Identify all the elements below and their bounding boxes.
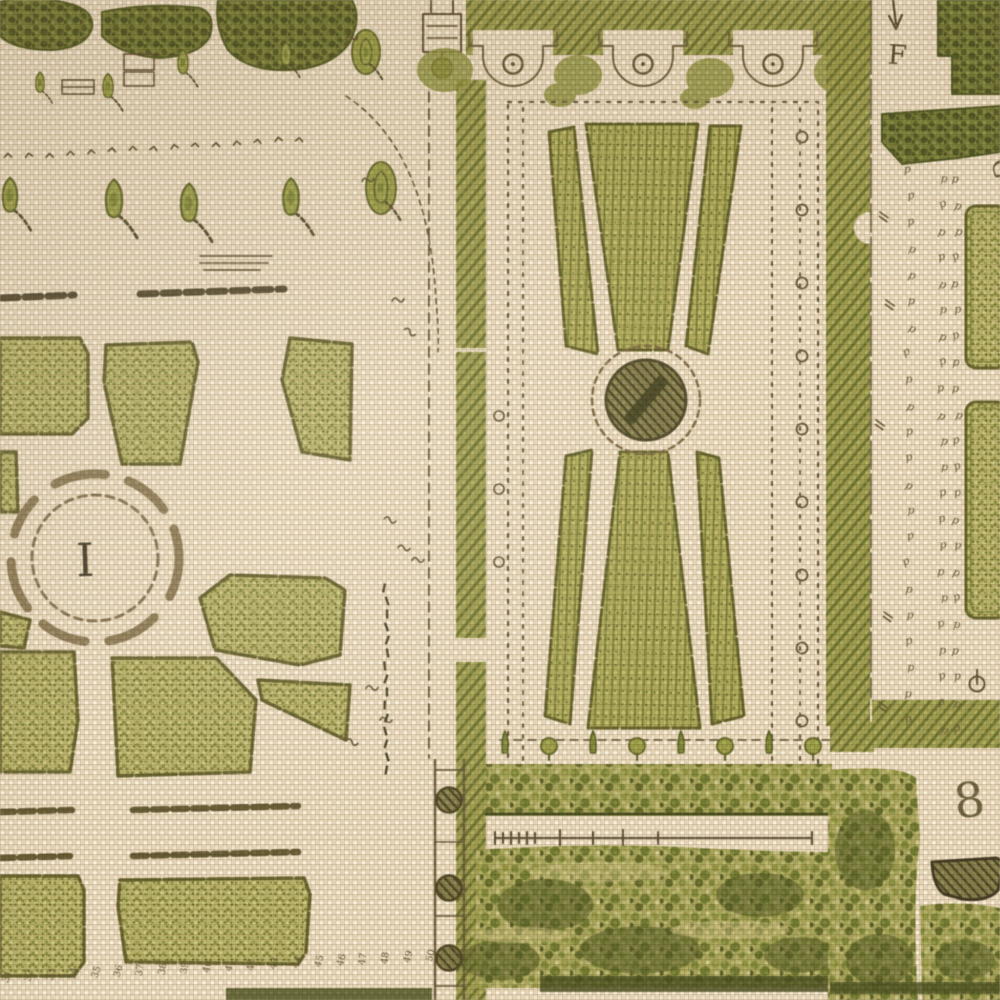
tree-symbol-mark: p bbox=[904, 450, 914, 464]
bosquet-dark-strip bbox=[540, 976, 830, 992]
tree-symbol-mark: p bbox=[951, 644, 959, 658]
tree-symbol-mark: p bbox=[952, 382, 960, 395]
chevron-shrub-mark bbox=[88, 150, 95, 154]
tree-shadow-mark bbox=[194, 220, 214, 244]
tree-crown bbox=[717, 738, 733, 754]
tree-symbol-mark: p bbox=[939, 644, 946, 657]
plot-figure-label: 35 bbox=[90, 965, 104, 980]
shrub-squiggle-mark bbox=[412, 557, 424, 563]
curved-path bbox=[346, 96, 438, 352]
walk-circle-mark bbox=[797, 205, 808, 216]
wall-medallion bbox=[437, 876, 462, 901]
tree-symbol-mark: p bbox=[903, 162, 911, 176]
tree-shadow-mark bbox=[186, 73, 198, 88]
tree-icon bbox=[181, 184, 213, 244]
plot-figure-label: 33 bbox=[45, 967, 58, 981]
tree-symbol-mark: p bbox=[954, 538, 962, 551]
tree-symbol-mark: p bbox=[908, 294, 916, 307]
shrub-squiggle-mark bbox=[398, 545, 410, 551]
slash-mark bbox=[884, 300, 895, 310]
tree-shadow-mark bbox=[295, 213, 314, 236]
tree-symbol-mark: p bbox=[951, 565, 961, 579]
tree-symbol-mark: p bbox=[907, 268, 917, 282]
slash-lines bbox=[884, 300, 895, 310]
plot-figure-label: 42 bbox=[245, 958, 257, 971]
tree-clump bbox=[882, 106, 1000, 164]
bastion-outline bbox=[469, 32, 557, 86]
vertical-inscription-mark bbox=[383, 700, 386, 709]
tree-crown bbox=[629, 738, 645, 754]
plot-figure-label: 36 bbox=[112, 964, 126, 978]
vertical-inscription-mark bbox=[384, 765, 388, 774]
tree-symbol-mark: p bbox=[938, 485, 947, 499]
tree-symbol-mark: p bbox=[951, 172, 959, 186]
chevron-shrub-mark bbox=[108, 148, 115, 152]
tree-symbol-mark: p bbox=[937, 196, 949, 211]
tree-symbol-mark: p bbox=[941, 460, 949, 473]
tree-symbol-mark: p bbox=[905, 529, 915, 543]
tree-crown bbox=[805, 738, 821, 754]
walk-circle-mark bbox=[494, 557, 504, 567]
tree-symbol-mark: p bbox=[904, 687, 912, 700]
round-tree-icon bbox=[717, 738, 733, 760]
tree-symbol-mark: p bbox=[905, 399, 916, 414]
chevron-shrub-mark bbox=[46, 153, 53, 157]
vertical-inscription-mark bbox=[385, 752, 390, 761]
basin-numeral: I bbox=[75, 533, 95, 588]
top-left-grove bbox=[0, 0, 357, 298]
basin-inner-ring bbox=[32, 495, 158, 621]
slash-lines bbox=[878, 212, 889, 222]
vertical-inscription-mark bbox=[383, 674, 388, 683]
chevron-shrub-mark bbox=[4, 153, 11, 157]
left-parterre: I bbox=[0, 338, 352, 776]
chevron-shrub-mark bbox=[67, 151, 74, 155]
shrub-squiggle-mark bbox=[404, 327, 417, 337]
round-tree-icon bbox=[629, 738, 645, 760]
vertical-inscription-mark bbox=[385, 596, 390, 605]
tree-symbol-mark: p bbox=[936, 409, 948, 424]
walk-circle-mark bbox=[797, 716, 808, 727]
tree-symbol-mark: p bbox=[937, 354, 948, 369]
central-avenue bbox=[346, 0, 486, 1000]
tree-crown bbox=[590, 731, 596, 753]
plot-figure-label: 45 bbox=[313, 954, 327, 969]
chevron-shrub-mark bbox=[212, 143, 219, 147]
tree-symbol-mark: p bbox=[936, 381, 944, 395]
walk-circle-mark bbox=[797, 497, 808, 508]
tree-symbol-mark: p bbox=[952, 355, 960, 368]
plot-figure-label: 40 bbox=[201, 959, 215, 973]
tree-symbol-mark: p bbox=[905, 372, 912, 385]
vertical-inscription-mark bbox=[386, 687, 389, 696]
tree-symbol-mark: p bbox=[937, 565, 945, 578]
tree-crown bbox=[766, 731, 772, 753]
tree-symbol-mark: p bbox=[953, 617, 961, 631]
walk-circle-mark bbox=[797, 278, 808, 289]
wall-medallion bbox=[437, 788, 462, 813]
bastion-dot bbox=[511, 62, 515, 66]
plot-figure-label: 48 bbox=[379, 951, 392, 964]
edge-label-g: G bbox=[986, 157, 1000, 181]
tree-symbol-mark: p bbox=[903, 478, 915, 493]
plot-figure-label: 43 bbox=[268, 956, 281, 970]
tree-symbol-mark: p bbox=[954, 303, 962, 316]
wall-medallion bbox=[437, 946, 462, 971]
cypress-tree-icon bbox=[678, 731, 684, 753]
tree-clump bbox=[938, 0, 1000, 94]
tree-symbol-mark: p bbox=[907, 503, 914, 516]
tree-shadow-mark bbox=[119, 216, 139, 240]
tree-shadow-mark bbox=[14, 210, 32, 232]
tree-icon bbox=[178, 50, 198, 88]
walk-circle-mark bbox=[797, 132, 808, 143]
shrub-squiggle-mark bbox=[392, 296, 405, 303]
tree-symbol-mark: p bbox=[906, 214, 915, 228]
tree-symbol-mark: p bbox=[953, 486, 962, 500]
plot-figure-label: 39 bbox=[179, 961, 192, 975]
tree-icon bbox=[3, 178, 32, 232]
tree-symbol-mark: p bbox=[939, 538, 948, 552]
chevron-shrub-mark bbox=[254, 139, 261, 143]
tree-symbol-mark: p bbox=[904, 634, 913, 648]
tree-symbol-mark: p bbox=[907, 661, 914, 674]
plot-figure-label: 32 bbox=[22, 968, 35, 982]
tree-symbol-mark: p bbox=[936, 616, 946, 630]
tree-clump bbox=[102, 6, 212, 58]
plot-figure-label: 37 bbox=[134, 963, 146, 976]
walk-circle-mark bbox=[494, 484, 504, 494]
plot-figure-label: 47 bbox=[357, 952, 369, 965]
tree-symbol-mark: p bbox=[940, 303, 947, 316]
tree-symbol-mark: p bbox=[952, 459, 963, 474]
slash-mark bbox=[878, 212, 889, 222]
walk-circle-mark bbox=[797, 424, 808, 435]
bosquet-dark-strip bbox=[830, 982, 1000, 994]
bastion-outline bbox=[599, 32, 687, 86]
chevron-shrub-mark bbox=[129, 146, 136, 150]
vertical-inscription-mark bbox=[382, 583, 386, 592]
basin-outer-ring bbox=[11, 474, 179, 642]
plot-numeral-8: 8 bbox=[951, 771, 988, 830]
chevron-shrub-mark bbox=[275, 137, 282, 141]
tree-symbol-mark: p bbox=[951, 513, 961, 527]
vertical-inscription-mark bbox=[385, 635, 390, 644]
tree-symbol-mark: p bbox=[940, 172, 947, 185]
tree-symbol-mark: p bbox=[937, 225, 947, 239]
chevron-shrub-mark bbox=[171, 144, 179, 149]
tree-symbol-mark: p bbox=[905, 424, 913, 438]
lower-left-parterre bbox=[0, 806, 432, 1000]
vertical-inscription-mark bbox=[383, 726, 388, 735]
tree-symbol-mark: p bbox=[953, 199, 963, 213]
chevron-shrub-mark bbox=[25, 153, 33, 158]
tree-icon bbox=[36, 72, 53, 104]
tree-symbol-mark: p bbox=[951, 433, 960, 447]
shrub-squiggle-mark bbox=[384, 516, 397, 523]
shrub-squiggle-mark bbox=[366, 685, 378, 691]
plot-figure-label: 38 bbox=[156, 962, 169, 976]
tree-symbol-mark: p bbox=[941, 591, 948, 604]
tree-shadow-mark bbox=[111, 97, 123, 112]
round-tree-icon bbox=[541, 738, 557, 760]
shrub-squiggle-mark bbox=[346, 738, 359, 746]
tree-symbol-mark: p bbox=[951, 328, 961, 342]
tree-icon bbox=[106, 180, 138, 240]
cypress-tree-icon bbox=[502, 731, 508, 753]
fountain-symbol bbox=[970, 670, 985, 692]
slash-lines bbox=[874, 420, 885, 430]
tree-symbol-mark: p bbox=[951, 590, 961, 604]
tree-symbol-mark: p bbox=[906, 321, 918, 336]
cypress-tree-icon bbox=[766, 731, 772, 753]
tree-crown bbox=[678, 731, 684, 753]
plot-figure-label: 46 bbox=[335, 953, 349, 968]
tree-crown bbox=[502, 731, 508, 753]
bench-structure bbox=[62, 54, 272, 270]
bottom-dark-hedge-strip bbox=[226, 988, 432, 1000]
vertical-inscription-mark bbox=[386, 609, 388, 618]
plot-figure-label: 49 bbox=[402, 949, 416, 964]
tree-symbol-mark: p bbox=[949, 249, 961, 264]
tree-symbol-mark: p bbox=[951, 277, 960, 291]
tree-symbol-mark: p bbox=[937, 249, 947, 263]
walk-circle-mark bbox=[797, 643, 808, 654]
tree-symbol-mark: p bbox=[954, 225, 964, 239]
tree-shadow-mark bbox=[42, 91, 52, 104]
right-hedge-band bbox=[826, 0, 870, 726]
walk-circle-mark bbox=[797, 570, 808, 581]
tree-symbol-mark: p bbox=[907, 608, 914, 621]
chevron-shrub-mark bbox=[296, 137, 303, 141]
garden-plan-print: I bbox=[0, 0, 1000, 1000]
fabric-photo: I bbox=[0, 0, 1000, 1000]
tree-symbol-mark: p bbox=[900, 554, 912, 569]
point-label-f: F bbox=[887, 40, 908, 72]
parterre-plots bbox=[0, 876, 310, 976]
bastion-dot bbox=[771, 62, 775, 66]
bastion-outline bbox=[729, 32, 817, 86]
tree-symbol-mark: p bbox=[937, 277, 948, 292]
vertical-inscription-mark bbox=[384, 622, 389, 631]
vertical-inscription-mark bbox=[383, 739, 388, 748]
tree-icon bbox=[103, 74, 123, 112]
tree-symbol-mark: p bbox=[907, 242, 917, 256]
walk-circle-mark bbox=[494, 411, 504, 421]
vertical-inscription-mark bbox=[383, 661, 386, 670]
tree-symbol-mark: p bbox=[940, 434, 949, 448]
tree-symbol-mark: p bbox=[953, 669, 961, 683]
tree-icon bbox=[283, 178, 314, 236]
slash-mark bbox=[874, 420, 885, 430]
tree-symbol-mark: p bbox=[954, 408, 964, 422]
tree-symbol-mark: p bbox=[900, 344, 911, 359]
pool-basin bbox=[932, 858, 1000, 900]
chevron-shrub-mark bbox=[192, 143, 199, 147]
slash-mark bbox=[882, 612, 893, 622]
tree-crown bbox=[541, 738, 557, 754]
tree-symbol-mark: p bbox=[937, 668, 947, 682]
slash-lines bbox=[882, 612, 893, 622]
tree-symbol-mark: p bbox=[938, 330, 948, 344]
hedge-dashed-bars bbox=[2, 289, 284, 298]
tree-symbol-mark: p bbox=[906, 188, 915, 202]
hedge-dashed-rows bbox=[0, 806, 298, 858]
chevron-shrub-mark bbox=[233, 141, 240, 145]
walk-circle-mark bbox=[797, 351, 808, 362]
chevron-shrub-mark bbox=[150, 146, 157, 150]
tree-symbol-mark: p bbox=[905, 582, 914, 596]
cypress-tree-icon bbox=[590, 731, 596, 753]
vertical-inscription-mark bbox=[386, 648, 390, 657]
north-arrow-icon bbox=[889, 0, 902, 29]
bastion-dot bbox=[641, 62, 645, 66]
round-tree-icon bbox=[805, 738, 821, 760]
tree-symbol-mark: p bbox=[937, 511, 947, 525]
plot-figure-label: 34 bbox=[67, 967, 79, 980]
scale-bar bbox=[495, 830, 812, 846]
bottom-hedge-band bbox=[486, 764, 832, 816]
tree-clump bbox=[0, 0, 92, 50]
